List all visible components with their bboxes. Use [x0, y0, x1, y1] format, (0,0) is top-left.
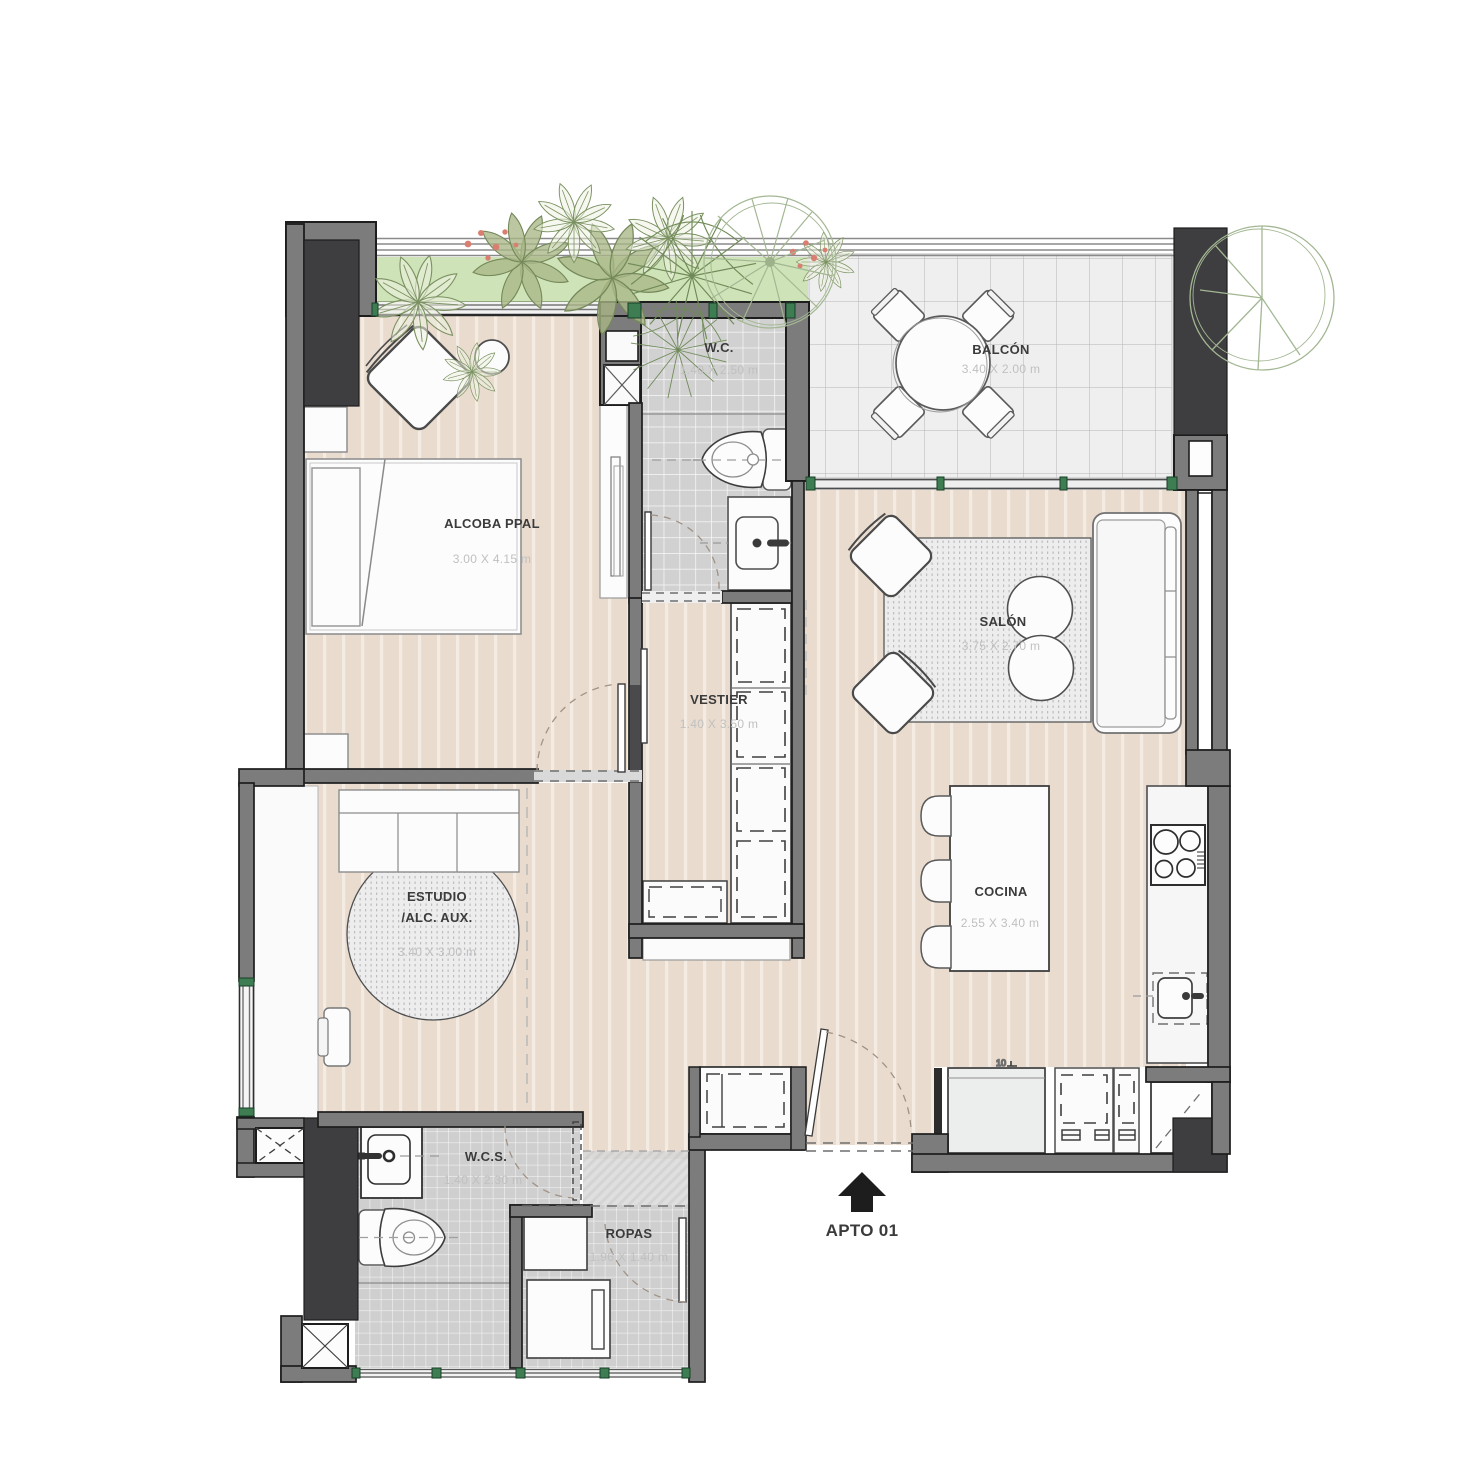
svg-text:1.40 X 2.30 m: 1.40 X 2.30 m: [444, 1173, 523, 1187]
svg-text:2.55 X 3.40 m: 2.55 X 3.40 m: [961, 916, 1040, 930]
svg-text:VESTIER: VESTIER: [690, 692, 748, 707]
svg-text:3.40 X 3.00 m: 3.40 X 3.00 m: [398, 945, 477, 959]
svg-text:10: 10: [996, 1058, 1006, 1068]
svg-text:1.40 X 3.50 m: 1.40 X 3.50 m: [680, 717, 759, 731]
svg-text:3.75 X 2.70 m: 3.75 X 2.70 m: [962, 639, 1041, 653]
svg-text:W.C.: W.C.: [704, 340, 733, 355]
svg-text:/ALC. AUX.: /ALC. AUX.: [401, 910, 472, 925]
svg-text:ALCOBA PPAL: ALCOBA PPAL: [444, 516, 540, 531]
svg-text:ESTUDIO: ESTUDIO: [407, 889, 467, 904]
svg-text:BALCÓN: BALCÓN: [972, 342, 1029, 357]
svg-text:APTO 01: APTO 01: [826, 1221, 899, 1240]
svg-text:W.C.S.: W.C.S.: [465, 1149, 507, 1164]
svg-text:1.96 X 1.40 m: 1.96 X 1.40 m: [590, 1250, 669, 1264]
svg-text:3.40 X 2.00 m: 3.40 X 2.00 m: [962, 362, 1041, 376]
svg-text:3.00 X 4.15 m: 3.00 X 4.15 m: [453, 552, 532, 566]
svg-text:1.40 X 2.50 m: 1.40 X 2.50 m: [680, 363, 759, 377]
svg-text:COCINA: COCINA: [974, 884, 1027, 899]
svg-text:SALÓN: SALÓN: [980, 614, 1027, 629]
svg-text:ROPAS: ROPAS: [606, 1226, 653, 1241]
